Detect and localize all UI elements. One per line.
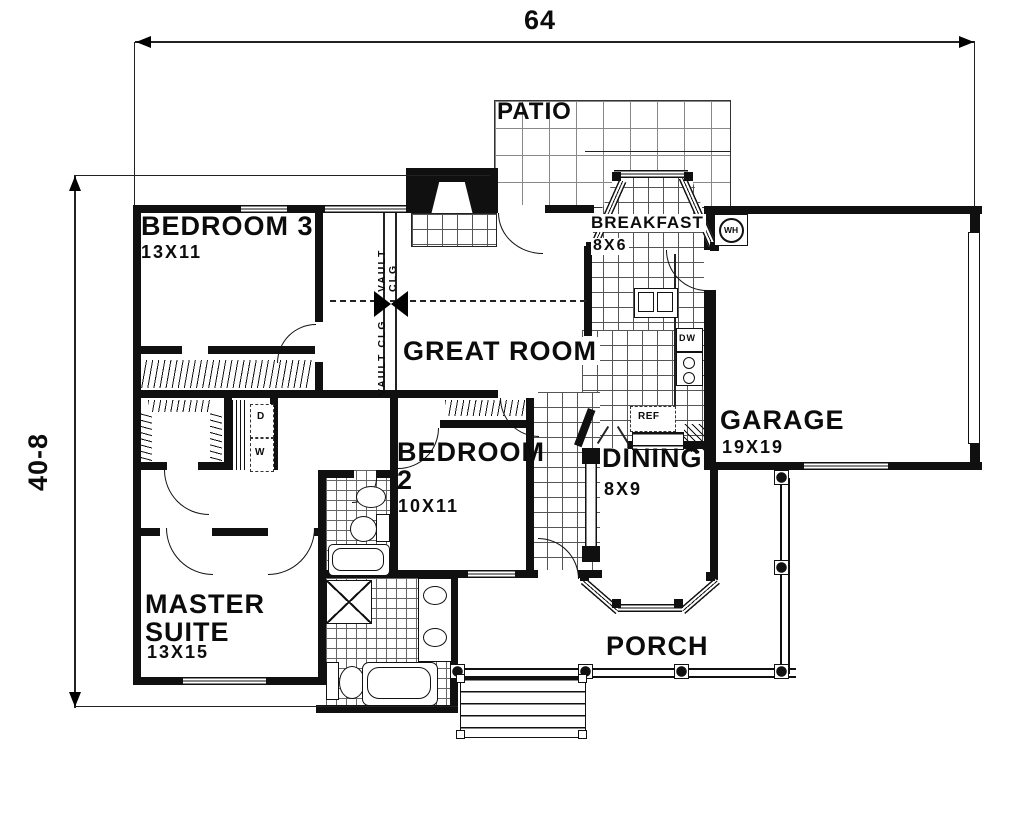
window	[468, 570, 515, 578]
step-post	[456, 674, 465, 683]
dim-ext	[75, 706, 458, 707]
closet-rod	[140, 412, 152, 464]
dim-ext	[134, 42, 135, 205]
closet-rod	[210, 412, 222, 464]
dim-line-top	[135, 41, 975, 43]
porch-label: PORCH	[606, 632, 709, 660]
breakfast-size: 8X6	[591, 238, 629, 255]
door-arc	[277, 324, 316, 363]
door-arc	[498, 213, 543, 254]
porch-post	[774, 470, 789, 485]
shower	[326, 580, 372, 624]
door-opening	[398, 420, 440, 428]
dim-arrow	[69, 176, 81, 191]
bedroom3-label: BEDROOM 3	[141, 212, 314, 240]
floor-plan: VAULT CLG VAULT CLG D W DW REF WH	[0, 0, 1024, 819]
sink	[356, 486, 386, 508]
dining-label: DINING	[602, 444, 703, 472]
garage-label: GARAGE	[720, 406, 845, 434]
dining-size: 8X9	[604, 480, 642, 499]
door-arc	[268, 528, 315, 575]
sink-bowl	[638, 292, 654, 312]
closet-rod	[445, 400, 530, 416]
step-post	[578, 730, 587, 739]
bay-window	[618, 604, 682, 612]
width-dimension: 64	[508, 6, 572, 34]
dryer-label: D	[257, 412, 265, 422]
porch-railing	[780, 478, 790, 674]
wall	[712, 206, 982, 214]
porch-railing	[452, 668, 796, 678]
wall	[315, 205, 323, 390]
vault-clg-label: VAULT CLG	[377, 318, 388, 396]
ridge-dashed-line	[330, 300, 586, 302]
master-suite-label: MASTER SUITE	[145, 590, 265, 646]
wall	[133, 528, 160, 536]
window	[183, 677, 266, 685]
entry-steps	[460, 678, 586, 738]
height-dimension: 40-8	[24, 405, 52, 491]
column	[582, 448, 600, 464]
bathtub	[362, 662, 438, 706]
dim-arrow	[959, 36, 974, 48]
breakfast-label: BREAKFAST	[589, 214, 706, 232]
wall	[133, 346, 182, 354]
burner	[683, 372, 695, 384]
bay-window	[680, 578, 720, 614]
door-opening	[496, 205, 545, 213]
bedroom2-label: BEDROOM 2	[397, 438, 545, 494]
porch-post	[774, 664, 789, 679]
dim-ext	[75, 175, 490, 176]
sink-bowl	[657, 292, 673, 312]
wall	[318, 470, 354, 478]
garage-size: 19X19	[722, 438, 784, 457]
vault-symbol	[374, 291, 391, 317]
door-opening	[315, 322, 323, 362]
column	[582, 546, 600, 562]
wall	[376, 470, 398, 478]
door-arc	[166, 528, 213, 575]
garage-door	[968, 232, 980, 444]
step-post	[456, 730, 465, 739]
wall	[224, 398, 232, 468]
window	[804, 462, 888, 470]
dim-line-left	[74, 175, 76, 708]
closet-rod	[140, 360, 312, 388]
wall	[584, 246, 592, 336]
closet-rod	[148, 400, 210, 412]
louver-doors	[232, 400, 246, 470]
bedroom3-size: 13X11	[141, 243, 202, 262]
bay-window	[581, 578, 621, 614]
bay-post	[612, 172, 621, 181]
vault-symbol	[391, 291, 408, 317]
dim-arrow	[136, 36, 151, 48]
door-opening	[498, 390, 538, 398]
water-heater-label: WH	[724, 226, 738, 235]
bay-post	[580, 572, 589, 581]
step-post	[578, 674, 587, 683]
patio-line	[585, 151, 731, 152]
bedroom2-size: 10X11	[398, 497, 459, 516]
wall	[710, 468, 718, 580]
bathtub	[328, 544, 390, 576]
bay-window	[614, 170, 688, 178]
range	[676, 352, 703, 386]
master-suite-size: 13X15	[147, 643, 209, 662]
toilet-bowl	[350, 516, 377, 542]
tub-basin	[332, 548, 384, 571]
bay-post	[674, 599, 683, 608]
sink	[423, 586, 447, 605]
patio-label: PATIO	[497, 100, 572, 125]
wall	[133, 390, 535, 398]
hearth	[411, 213, 497, 247]
washer-label: W	[255, 448, 265, 458]
vault-clg-label: VAULT CLG	[377, 216, 399, 292]
sink	[423, 628, 447, 647]
porch-post	[674, 664, 689, 679]
tub-basin	[367, 667, 431, 699]
bay-post	[684, 172, 693, 181]
door-arc	[164, 470, 209, 515]
toilet-tank	[376, 514, 390, 542]
refrigerator-label: REF	[638, 412, 660, 422]
porch-post	[774, 560, 789, 575]
kitchen-sink	[634, 288, 678, 318]
dim-arrow	[69, 692, 81, 707]
window	[325, 205, 407, 213]
sidelight	[585, 464, 597, 546]
wall	[212, 528, 268, 536]
burner	[683, 357, 695, 369]
great-room-label: GREAT ROOM	[400, 337, 600, 365]
dim-ext	[974, 42, 975, 206]
dishwasher-label: DW	[679, 334, 696, 343]
bay-post	[612, 599, 621, 608]
bay-post	[706, 572, 715, 581]
toilet-tank	[326, 662, 339, 700]
